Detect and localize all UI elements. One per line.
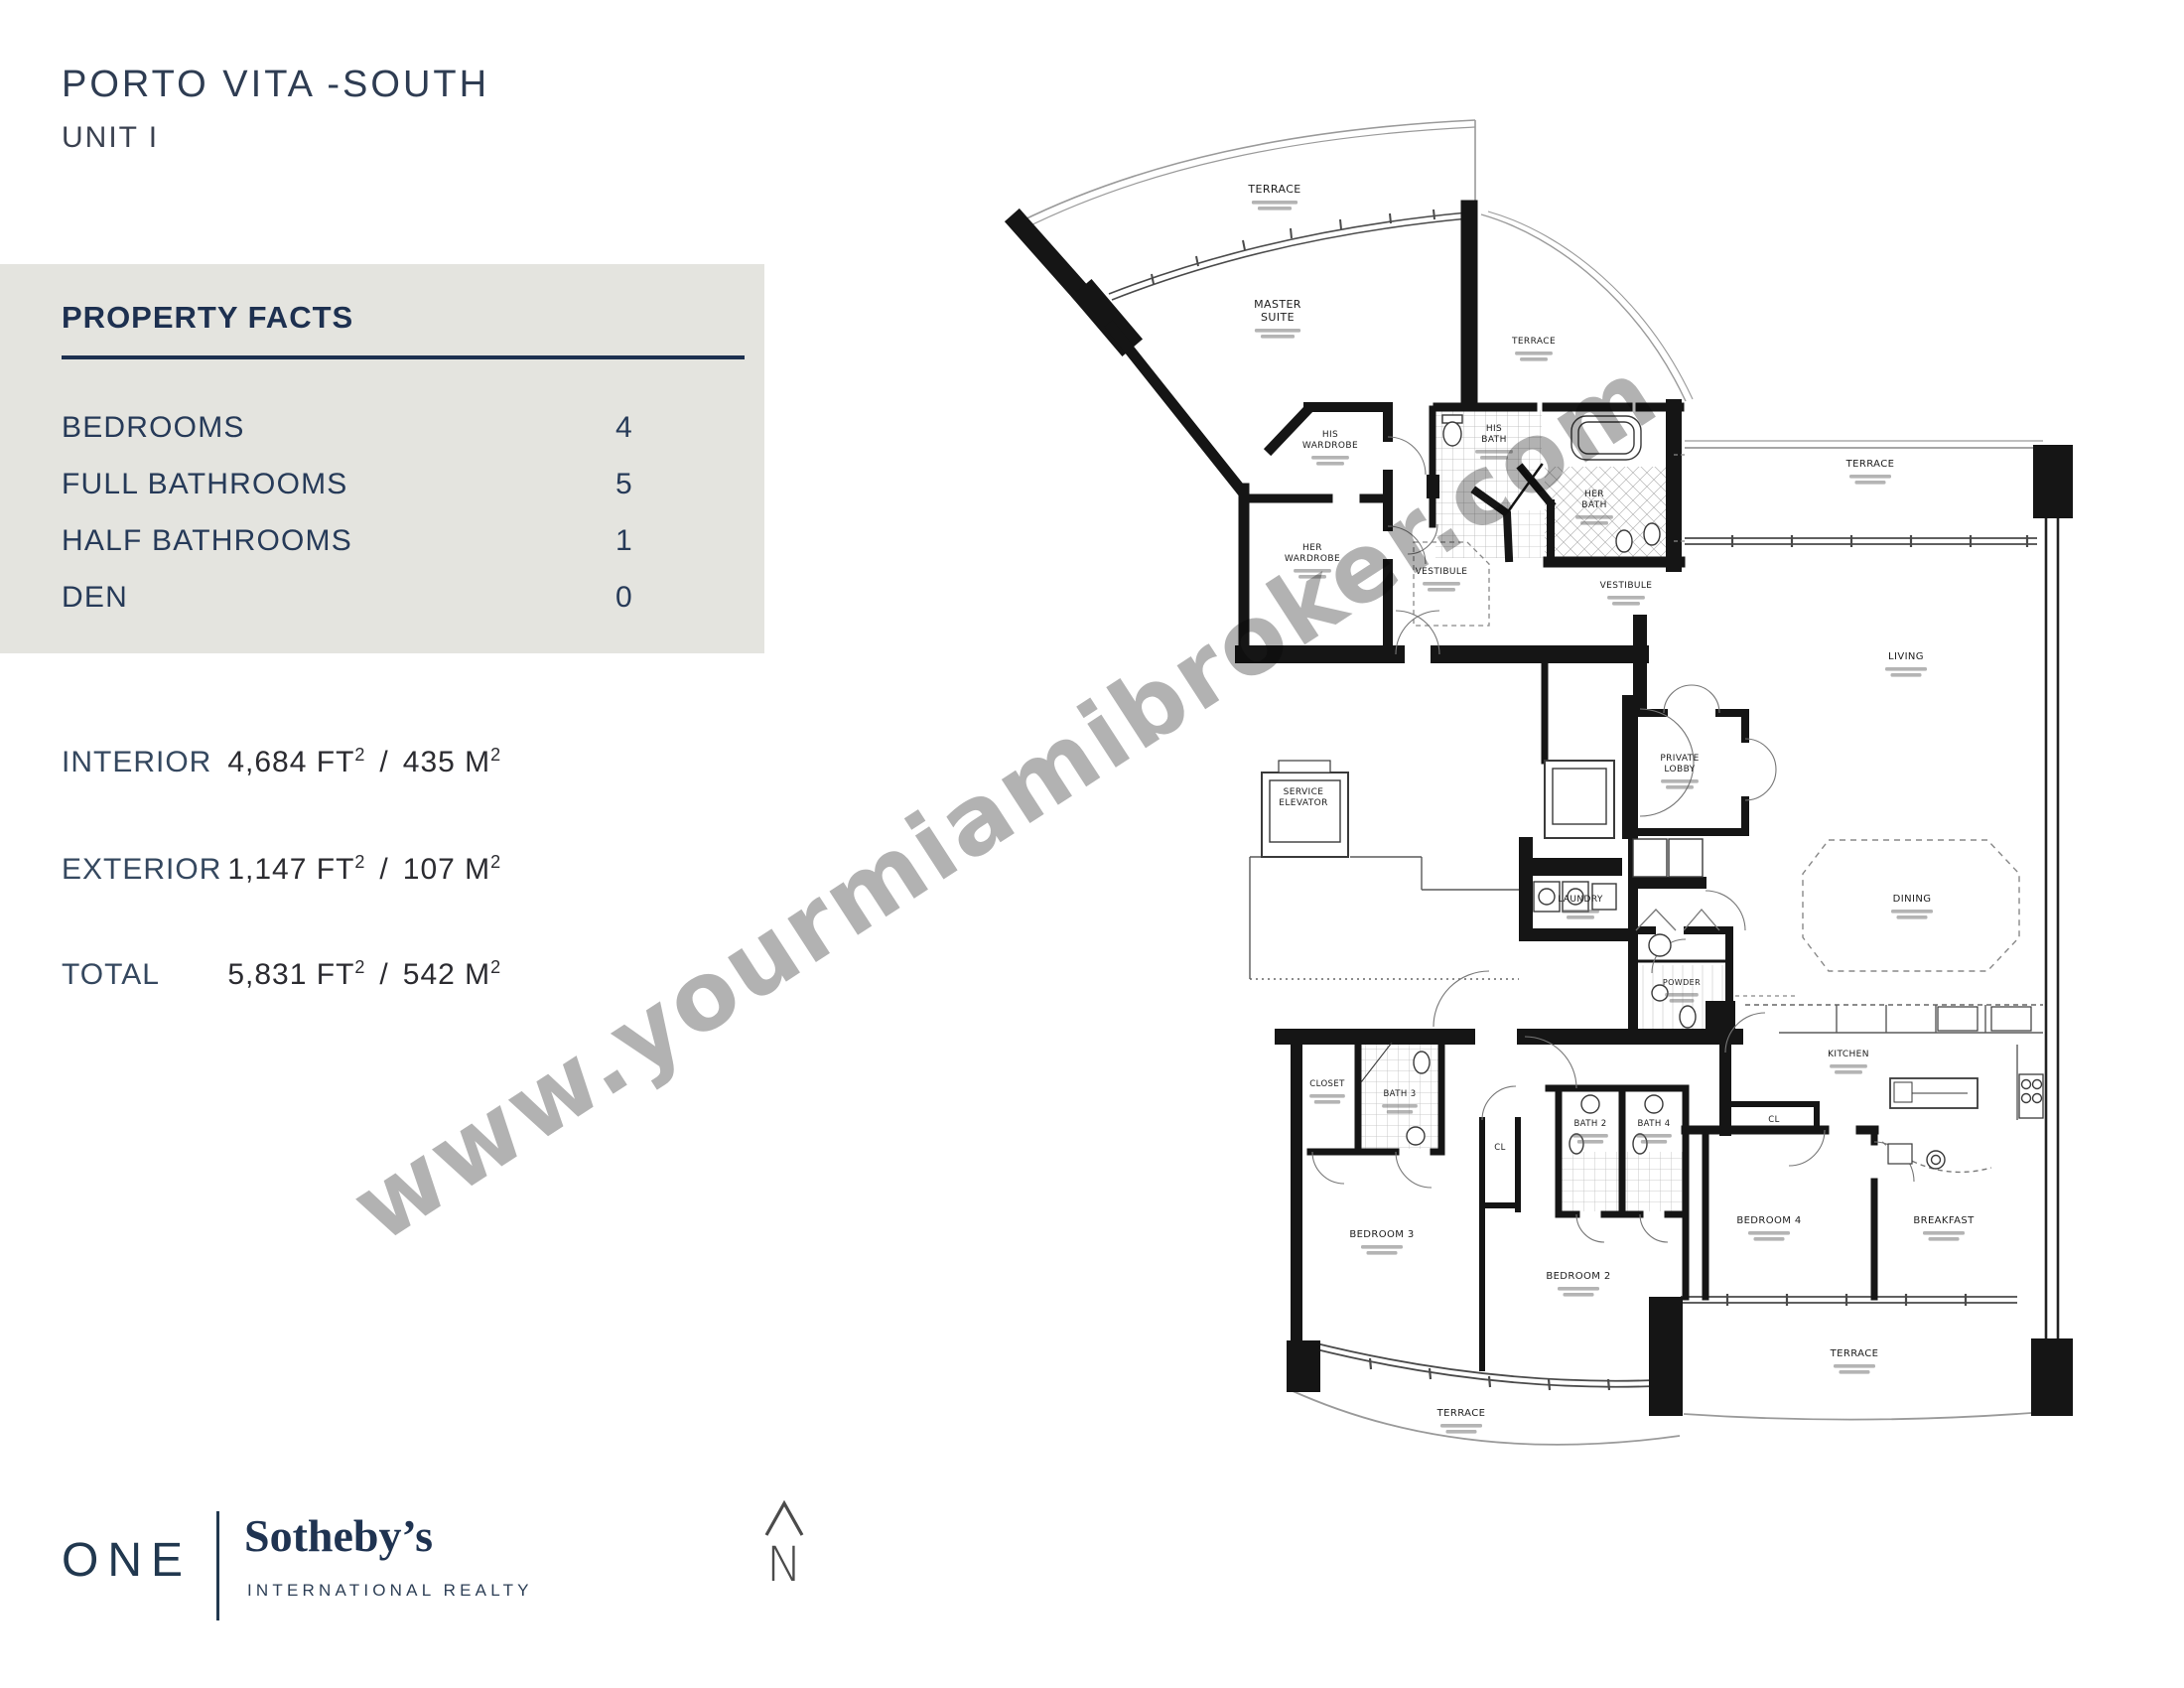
room-dims-terrace-master-east-0 (1515, 352, 1553, 355)
room-dims-terrace-master-east-1 (1520, 357, 1548, 361)
room-dims-terrace-southeast-0 (1834, 1364, 1875, 1368)
room-dims-his-bath-1 (1480, 456, 1508, 460)
bath-tile (1509, 510, 1545, 558)
room-dims-dining-1 (1897, 915, 1928, 919)
room-dims-his-wardrobe-0 (1311, 456, 1349, 460)
room-dims-her-wardrobe-0 (1294, 569, 1331, 573)
bath4-tile (1625, 1152, 1683, 1211)
wall-blocks (1287, 445, 2073, 1416)
room-dims-dining-0 (1891, 910, 1933, 914)
walls (1019, 209, 2058, 1368)
room-dims-powder-1 (1670, 999, 1695, 1003)
room-dims-his-wardrobe-1 (1316, 462, 1344, 466)
room-dims-her-bath-1 (1580, 521, 1608, 525)
room-dims-master-suite-1 (1261, 335, 1295, 339)
room-dims-terrace-northeast-1 (1855, 481, 1886, 485)
room-dims-bedroom-4-0 (1748, 1231, 1790, 1235)
room-label-her-wardrobe: HERWARDROBE (1285, 543, 1340, 564)
room-dims-vestibule-1-0 (1423, 582, 1460, 586)
room-label-bedroom-2: BEDROOM 2 (1546, 1271, 1610, 1282)
room-dims-master-suite-0 (1255, 329, 1300, 333)
room-dims-terrace-fan-1 (1258, 207, 1292, 211)
room-dims-bath-4-0 (1636, 1134, 1672, 1138)
room-label-terrace-northeast: TERRACE (1845, 459, 1895, 470)
room-dims-bedroom-2-0 (1558, 1287, 1599, 1291)
room-dims-her-wardrobe-1 (1298, 575, 1326, 579)
floorplan-drawing: TERRACEMASTERSUITETERRACEHISWARDROBEHISB… (0, 0, 2184, 1688)
room-dims-private-lobby-0 (1661, 779, 1699, 783)
room-dims-bath-4-1 (1641, 1140, 1667, 1144)
room-label-living: LIVING (1888, 651, 1924, 662)
bath2-tile (1562, 1152, 1619, 1211)
room-dims-terrace-northeast-0 (1849, 475, 1891, 479)
room-dims-closet-bed3-0 (1309, 1094, 1345, 1098)
floorplan-sheet: PORTO VITA -SOUTH UNIT I PROPERTY FACTS … (0, 0, 2184, 1688)
room-dims-powder-0 (1665, 993, 1699, 997)
room-label-bedroom-3: BEDROOM 3 (1349, 1229, 1414, 1240)
room-dims-vestibule-2-0 (1607, 596, 1645, 600)
room-label-breakfast: BREAKFAST (1913, 1215, 1975, 1226)
room-label-his-wardrobe: HISWARDROBE (1302, 430, 1358, 451)
room-dims-bedroom-2-1 (1564, 1293, 1594, 1297)
room-label-bath-3: BATH 3 (1383, 1089, 1416, 1099)
room-dims-private-lobby-1 (1666, 785, 1694, 789)
room-dims-his-bath-0 (1475, 450, 1513, 454)
room-dims-her-bath-0 (1575, 515, 1613, 519)
room-label-terrace-south: TERRACE (1436, 1408, 1486, 1419)
room-dims-terrace-southeast-1 (1840, 1370, 1870, 1374)
room-label-her-bath: HERBATH (1581, 490, 1607, 510)
room-label-powder: POWDER (1663, 978, 1701, 987)
room-dims-laundry-1 (1567, 915, 1594, 919)
room-dims-kitchen-1 (1835, 1070, 1862, 1074)
room-dims-living-1 (1891, 673, 1922, 677)
room-dims-bedroom-4-1 (1754, 1237, 1785, 1241)
room-dims-bath-3-1 (1387, 1110, 1413, 1114)
room-dims-bath-3-0 (1382, 1104, 1418, 1108)
room-dims-terrace-fan-0 (1252, 201, 1297, 205)
room-dims-bedroom-3-1 (1367, 1251, 1398, 1255)
her-bath-tile (1545, 467, 1672, 560)
room-label-bath-2: BATH 2 (1573, 1119, 1606, 1129)
room-dims-breakfast-0 (1923, 1231, 1965, 1235)
room-label-vestibule-2: VESTIBULE (1600, 581, 1653, 591)
room-dims-kitchen-0 (1830, 1064, 1867, 1068)
room-dims-terrace-south-1 (1446, 1430, 1477, 1434)
room-label-kitchen: KITCHEN (1828, 1050, 1869, 1059)
room-dims-bedroom-3-0 (1361, 1245, 1403, 1249)
room-dims-living-0 (1885, 667, 1927, 671)
room-label-terrace-southeast: TERRACE (1830, 1348, 1879, 1359)
room-dims-terrace-south-0 (1440, 1424, 1482, 1428)
room-label-laundry: LAUNDRY (1558, 895, 1603, 905)
room-label-vestibule-1: VESTIBULE (1416, 567, 1468, 577)
room-dims-breakfast-1 (1929, 1237, 1960, 1241)
room-label-terrace-fan: TERRACE (1247, 183, 1300, 196)
room-label-private-lobby: PRIVATELOBBY (1660, 754, 1699, 774)
room-dims-vestibule-2-1 (1612, 602, 1640, 606)
room-label-master-suite: MASTERSUITE (1254, 298, 1301, 324)
room-label-cl-kitchen: CL (1768, 1115, 1779, 1125)
room-dims-vestibule-1-1 (1428, 588, 1455, 592)
room-label-closet-bed3: CLOSET (1309, 1079, 1345, 1089)
room-label-cl-hall: CL (1494, 1143, 1505, 1153)
room-dims-bath-2-1 (1577, 1140, 1603, 1144)
room-dims-closet-bed3-1 (1314, 1100, 1340, 1104)
room-dims-laundry-0 (1562, 910, 1599, 914)
room-dims-bath-2-0 (1572, 1134, 1608, 1138)
room-label-bedroom-4: BEDROOM 4 (1736, 1215, 1801, 1226)
room-label-dining: DINING (1893, 894, 1932, 905)
room-label-terrace-master-east: TERRACE (1511, 337, 1556, 347)
room-label-bath-4: BATH 4 (1637, 1119, 1670, 1129)
room-label-service-elevator: SERVICEELEVATOR (1279, 787, 1327, 808)
